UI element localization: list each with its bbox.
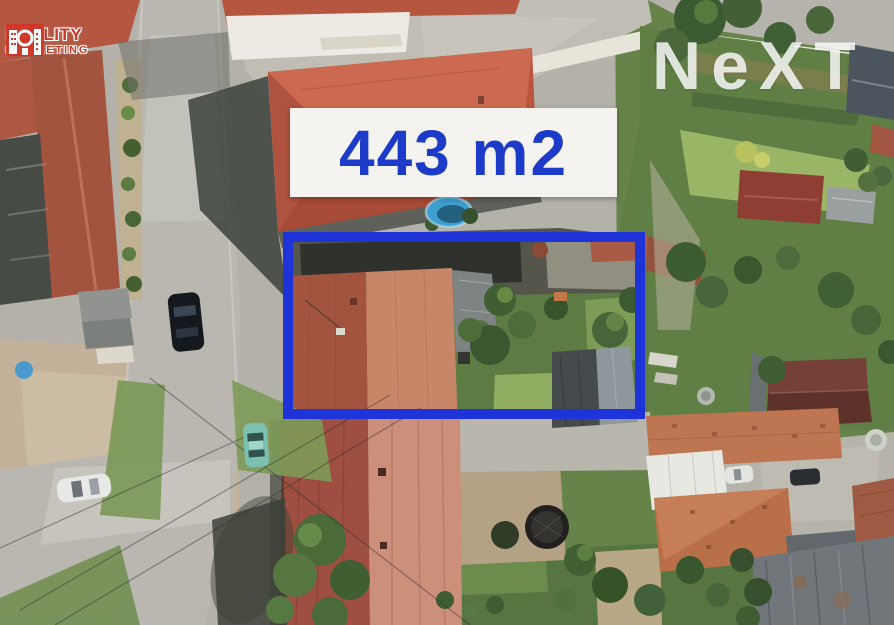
area-size-label: 443 m2 <box>339 116 568 190</box>
brand-watermark: NeXT <box>652 32 866 100</box>
trampoline <box>525 505 569 549</box>
agency-logo-icon <box>6 22 44 58</box>
real-estate-aerial-photo: 443 m2 REALITY MARKETING NeXT <box>0 0 894 625</box>
area-size-banner: 443 m2 <box>290 108 617 197</box>
plot-boundary-outline <box>283 232 645 419</box>
parked-car-teal <box>242 422 269 468</box>
agency-logo: REALITY MARKETING <box>6 22 89 56</box>
parked-car-dark-right <box>789 468 820 486</box>
parked-car-white-right <box>724 465 754 485</box>
small-pool <box>15 361 33 379</box>
parked-car-black <box>167 291 205 352</box>
